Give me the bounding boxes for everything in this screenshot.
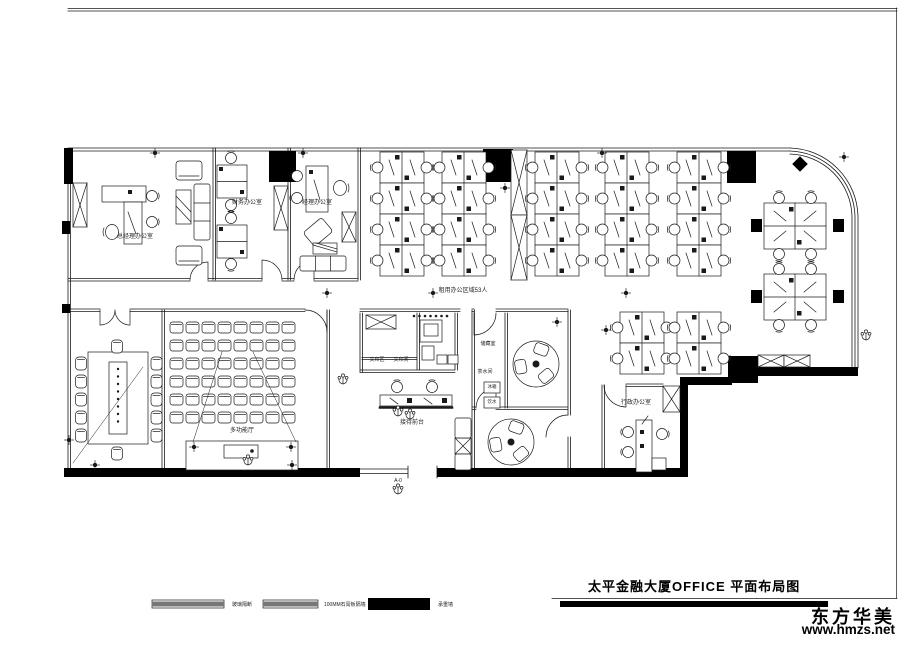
room-label-gm-office: 总经理办公室 bbox=[117, 234, 153, 240]
appliance-label-fridge: 冰箱 bbox=[488, 385, 497, 390]
legend-label-glass: 玻璃隔断 bbox=[232, 601, 252, 608]
legend-swatches bbox=[152, 598, 430, 610]
drawing-title: 太平金融大厦OFFICE 平面布局图 bbox=[588, 576, 800, 595]
appliance-label-water: 饮水 bbox=[488, 400, 497, 405]
room-label-pantry: 茶水间 bbox=[477, 370, 492, 375]
room-label-copy-room: 文印间 bbox=[393, 358, 408, 363]
conference-room-furniture bbox=[73, 340, 162, 463]
legend-label-gypsum: 100MM石膏板隔墙 bbox=[324, 601, 366, 608]
admin-office-furniture bbox=[621, 416, 669, 472]
legend-swatch-bearing-wall bbox=[368, 598, 430, 610]
finance-office-furniture bbox=[217, 151, 247, 271]
curtain-wall-curve bbox=[790, 148, 858, 368]
room-label-copy-area: 文印区 bbox=[369, 358, 384, 363]
room-label-finance-office: 财务办公室 bbox=[232, 200, 262, 206]
room-label-admin-office: 行政办公室 bbox=[621, 400, 651, 406]
manager-office-furniture bbox=[290, 166, 349, 271]
legend-label-bearing-wall: 承重墙 bbox=[438, 601, 453, 608]
room-label-manager-office: 经理办公室 bbox=[302, 200, 332, 206]
area-label-open-office: 租用办公区域53人 bbox=[439, 288, 488, 294]
entrance-opening bbox=[360, 466, 437, 478]
entrance-label: A-0 bbox=[394, 479, 402, 484]
title-block-bar bbox=[560, 601, 828, 607]
watermark-site: www.hmzs.net bbox=[802, 622, 895, 637]
reception-counter bbox=[380, 395, 452, 406]
floor-plan-page: 总经理办公室 财务办公室 经理办公室 租用办公区域53人 多功能厅 文印区 文印… bbox=[0, 0, 909, 647]
room-label-reception: 接待前台 bbox=[400, 420, 424, 426]
gm-office-furniture bbox=[102, 161, 210, 265]
reception-furniture bbox=[380, 380, 452, 408]
right-pinwheel-clusters bbox=[764, 191, 826, 332]
room-label-storage: 储藏室 bbox=[480, 342, 495, 347]
room-label-multi-hall: 多功能厅 bbox=[230, 428, 254, 434]
floorplan-canvas bbox=[0, 0, 909, 647]
multi-hall-furniture bbox=[170, 322, 298, 470]
